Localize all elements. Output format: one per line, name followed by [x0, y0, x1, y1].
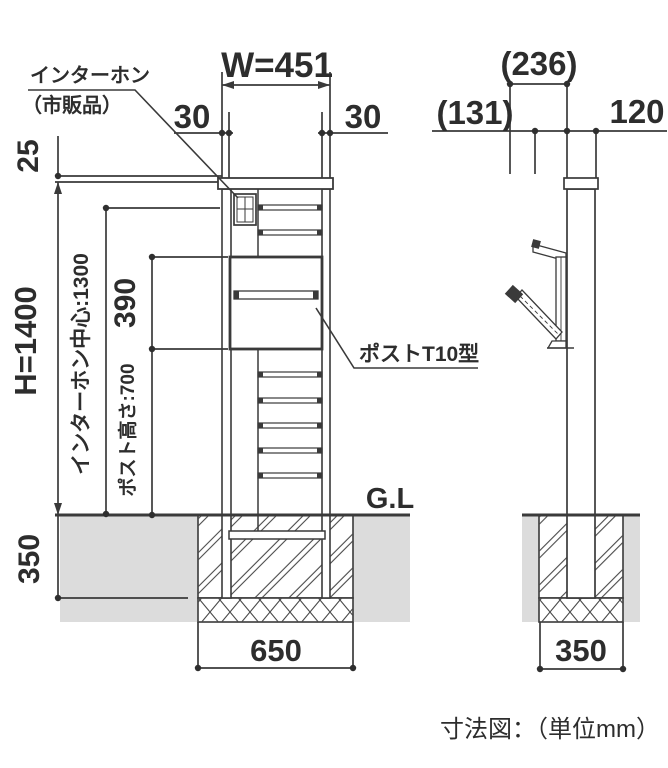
slat-rail [258, 205, 322, 210]
side-cap [564, 178, 598, 189]
dim-offset-left: 30 [174, 98, 211, 135]
dim-height: H=1400 [8, 286, 43, 395]
dim-footing-width-side: 350 [555, 633, 607, 668]
intercom-label-line2: （市販品） [22, 93, 122, 117]
mailbox-slot-end-left [234, 291, 239, 299]
gravel-side-hatch [539, 598, 623, 622]
front-view [218, 178, 333, 598]
slat-rail [258, 398, 322, 403]
gravel-front-hatch [198, 598, 353, 622]
slat-rail [258, 423, 322, 428]
side-post [567, 189, 595, 598]
dim-embed-depth: 350 [13, 534, 46, 584]
dimension-drawing-page: インターホン （市販品） W=451 30 30 (236) (131) 120… [0, 0, 668, 768]
dim-overall-depth: (236) [500, 45, 577, 82]
slat-rail [258, 448, 322, 453]
dim-front-overhang: (131) [436, 94, 513, 131]
slat-rail [258, 230, 322, 235]
intercom-label-line1: インターホン [30, 64, 150, 87]
dim-post-depth: 120 [609, 93, 664, 130]
dim-post-height: ポスト高さ:700 [116, 363, 139, 496]
slat-rail [258, 372, 322, 377]
mailbox-slot-end-right [313, 291, 318, 299]
dim-footing-width-front: 650 [250, 633, 302, 668]
dim-post-opening: 390 [109, 278, 142, 328]
post-model-label: ポストT10型 [359, 342, 479, 366]
mailbox-slot [234, 291, 318, 299]
dim-cap: 25 [12, 139, 45, 172]
front-cap [218, 178, 333, 189]
dimension-diagram-svg: インターホン （市販品） W=451 30 30 (236) (131) 120… [0, 0, 668, 768]
ground-level-label: G.L [366, 483, 414, 515]
dim-intercom-center: インターホン中心:1300 [70, 253, 93, 475]
buried-base-rail [229, 531, 325, 539]
slat-rail [258, 473, 322, 478]
intercom-unit [234, 194, 256, 225]
drawing-caption: 寸法図：（単位mm） [440, 716, 660, 743]
mailbox-side-bracket [505, 239, 574, 348]
dim-offset-right: 30 [345, 98, 382, 135]
dim-top-width: W=451 [221, 46, 333, 85]
mailbox-front [230, 257, 322, 349]
bracket-foot [548, 341, 566, 348]
